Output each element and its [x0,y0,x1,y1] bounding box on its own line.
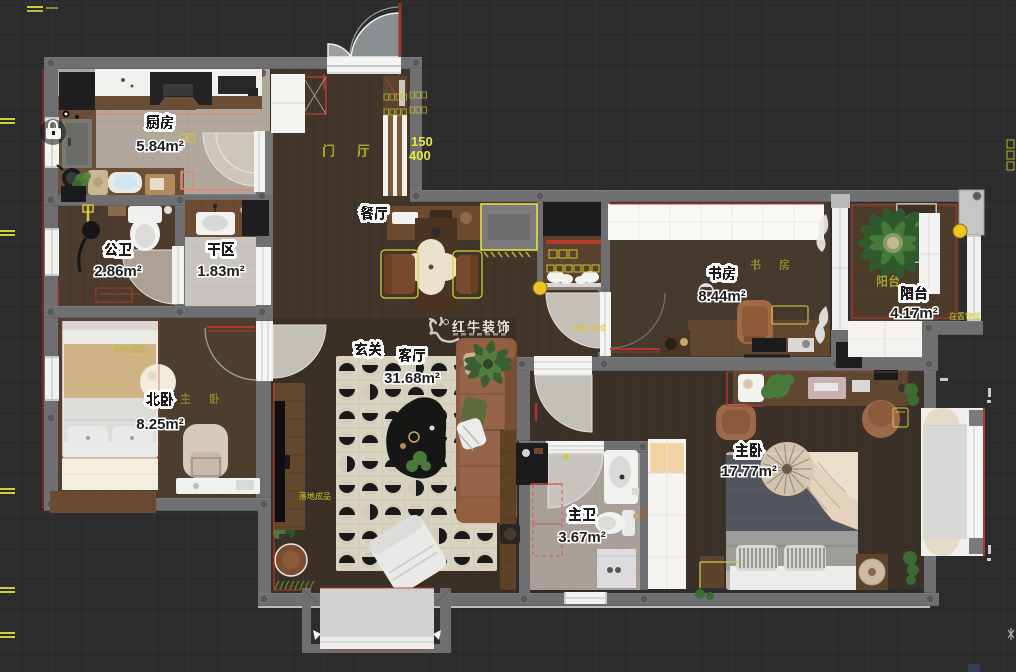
svg-text:8.44m²: 8.44m² [698,288,746,305]
svg-text:17.77m²: 17.77m² [721,463,777,480]
svg-text:400: 400 [409,148,431,163]
svg-text:150: 150 [411,134,433,149]
svg-text:4.17m²: 4.17m² [890,305,938,322]
svg-text:1.83m²: 1.83m² [197,263,245,280]
svg-text:31.68m²: 31.68m² [384,370,440,387]
svg-text:3.67m²: 3.67m² [558,529,606,546]
svg-text:8.25m²: 8.25m² [136,416,184,433]
svg-text:5.84m²: 5.84m² [136,138,184,155]
svg-text:WB:220: WB:220 [573,323,606,333]
svg-text:2.86m²: 2.86m² [94,263,142,280]
